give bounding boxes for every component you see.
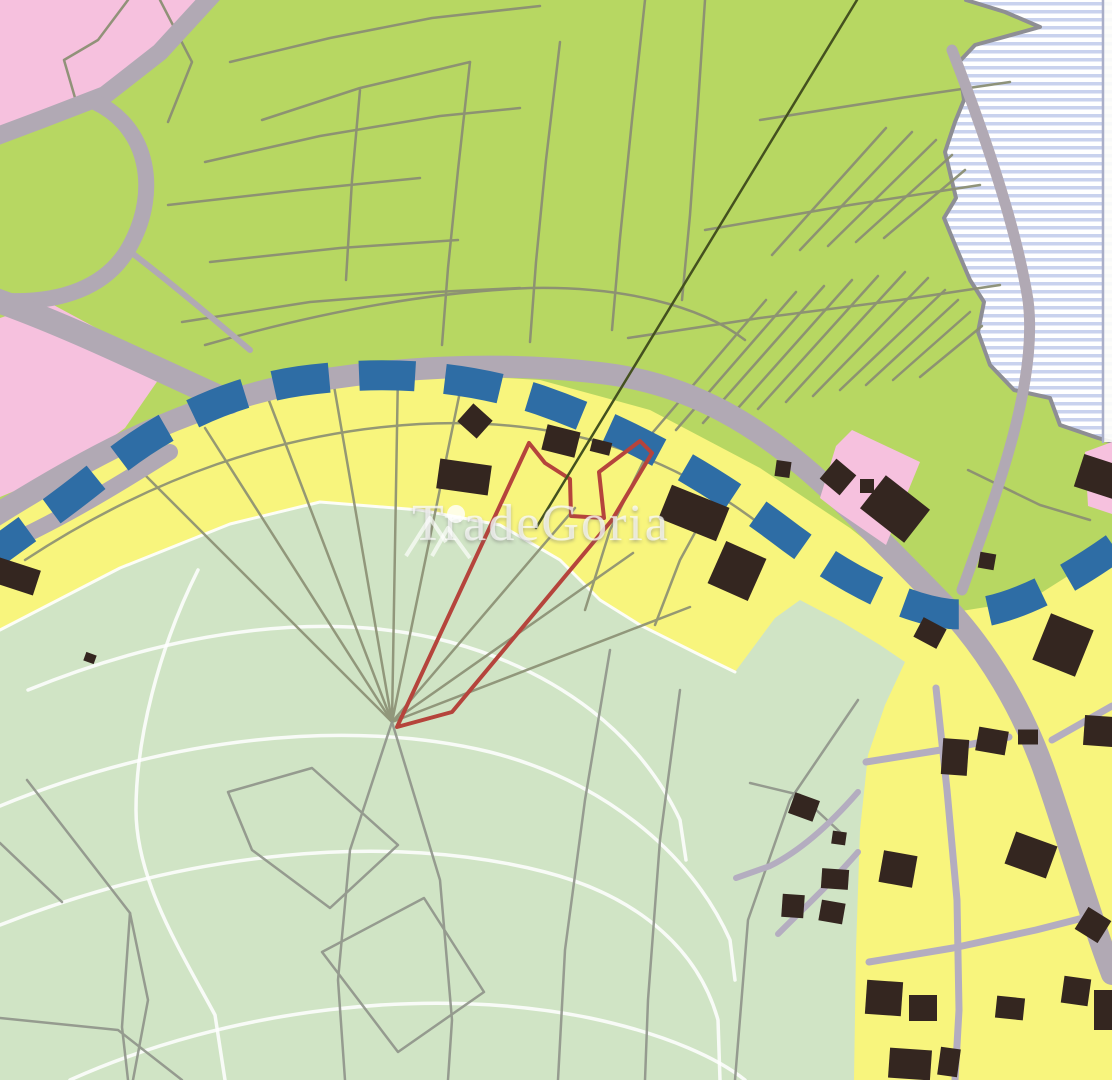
zoning-map: [0, 0, 1112, 1080]
map-viewport: TradeGoria: [0, 0, 1112, 1080]
